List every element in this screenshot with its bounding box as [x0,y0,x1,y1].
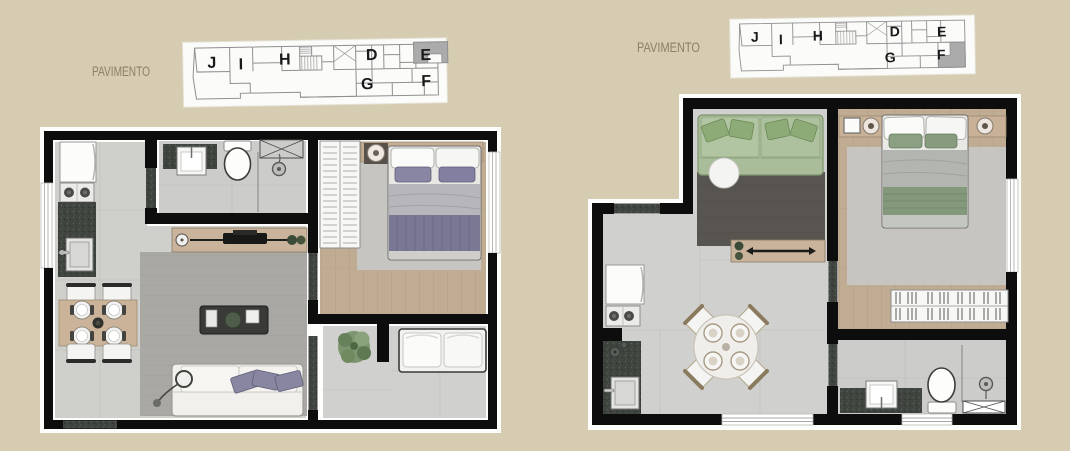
svg-text:I: I [238,56,243,73]
svg-text:G: G [885,49,896,65]
svg-text:G: G [361,76,374,93]
svg-text:J: J [207,55,216,72]
svg-text:D: D [890,23,900,39]
svg-text:J: J [751,29,759,45]
svg-text:H: H [279,51,291,68]
svg-text:F: F [421,73,431,90]
svg-text:H: H [813,28,823,44]
svg-text:I: I [779,31,783,47]
svg-text:PAVIMENTO: PAVIMENTO [637,40,700,55]
svg-text:E: E [420,47,431,64]
svg-text:F: F [937,46,946,62]
svg-text:E: E [937,23,947,39]
svg-text:D: D [366,47,378,64]
svg-text:PAVIMENTO: PAVIMENTO [92,64,150,79]
